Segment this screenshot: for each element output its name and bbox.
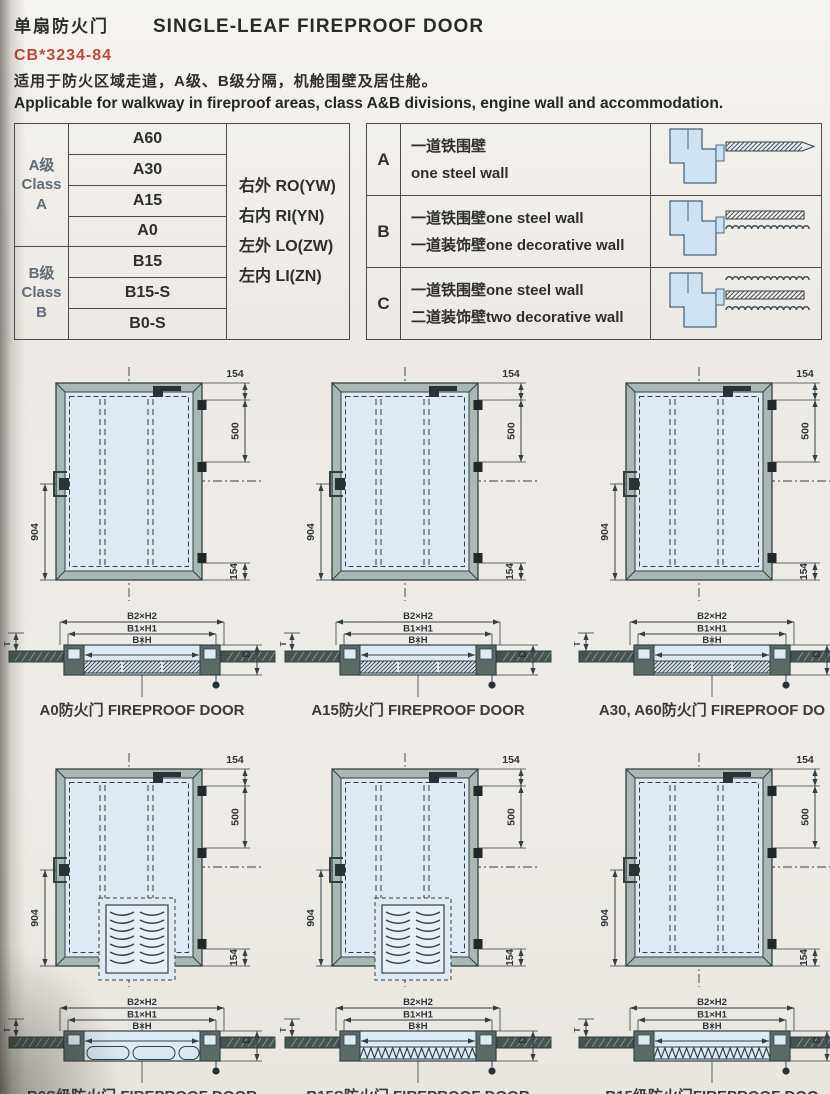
- door-figure-b15: 154500154904 B2×H2B1×H1B×HDT B15级防火门FIRE…: [574, 750, 830, 1094]
- door-figure-a30-a60: 154500154904 B2×H2B1×H1B×HDT A30, A60防火门…: [574, 364, 830, 720]
- svg-text:B2×H2: B2×H2: [127, 997, 157, 1008]
- svg-text:T: T: [4, 641, 12, 647]
- svg-text:D: D: [812, 650, 823, 657]
- svg-text:500: 500: [230, 422, 242, 440]
- orientation-cell: 右外 RO(YW) 右内 RI(YN) 左外 LO(ZW) 左内 LI(ZN): [227, 124, 350, 340]
- svg-text:T: T: [574, 1027, 582, 1033]
- section-svg: B2×H2B1×H1B×HDT: [574, 992, 830, 1084]
- svg-text:904: 904: [29, 523, 41, 541]
- svg-text:B×H: B×H: [408, 1021, 427, 1032]
- description-chinese: 适用于防火区域走道，A级、B级分隔，机舱围壁及居住舱。: [14, 70, 830, 91]
- svg-text:T: T: [4, 1027, 12, 1033]
- door-front-drawing: 154500154904: [574, 364, 830, 604]
- svg-text:D: D: [242, 1036, 253, 1043]
- door-cross-section: B2×H2B1×H1B×HDT: [574, 606, 830, 698]
- wall-diagram-svg: [654, 196, 818, 262]
- svg-text:T: T: [280, 641, 288, 647]
- door-svg: 154500154904: [16, 364, 268, 604]
- svg-text:B2×H2: B2×H2: [403, 997, 433, 1008]
- door-front-drawing: 154500154904: [4, 364, 280, 604]
- svg-text:904: 904: [599, 523, 611, 541]
- class-a-label: A级 Class A: [15, 124, 69, 247]
- door-figure-b15s: 154500154904 B2×H2B1×H1B×HDT B15S防火门 FIR…: [280, 750, 556, 1094]
- door-svg: 154500154904: [16, 750, 268, 990]
- wall-diagram-svg: [654, 124, 818, 190]
- svg-text:904: 904: [305, 523, 317, 541]
- wall-row-key: C: [367, 268, 401, 340]
- door-cross-section: B2×H2B1×H1B×HDT: [4, 992, 280, 1084]
- svg-text:B×H: B×H: [408, 635, 427, 646]
- svg-text:B1×H1: B1×H1: [697, 1010, 728, 1021]
- figure-caption: A15防火门 FIREPROOF DOOR: [280, 699, 556, 720]
- svg-text:B2×H2: B2×H2: [403, 611, 433, 622]
- wall-diagram-c: [651, 268, 822, 340]
- svg-text:B×H: B×H: [132, 635, 151, 646]
- page-title: 单扇防火门SINGLE-LEAF FIREPROOF DOOR: [14, 12, 830, 38]
- class-b-label: B级 Class B: [15, 247, 69, 340]
- wall-row-text: 一道铁围壁one steel wall 二道装饰壁two decorative …: [401, 268, 651, 340]
- svg-text:B2×H2: B2×H2: [697, 611, 727, 622]
- door-figure-a15: 154500154904 B2×H2B1×H1B×HDT A15防火门 FIRE…: [280, 364, 556, 720]
- type-cell: A0: [69, 216, 227, 247]
- page-header: 单扇防火门SINGLE-LEAF FIREPROOF DOOR CB*3234-…: [0, 0, 830, 113]
- figure-caption: B15级防火门FIREPROOF DOO: [574, 1085, 830, 1094]
- wall-row-key: A: [367, 124, 401, 196]
- door-cross-section: B2×H2B1×H1B×HDT: [280, 992, 556, 1084]
- svg-text:154: 154: [796, 754, 814, 766]
- type-cell: B15-S: [69, 278, 227, 309]
- svg-text:154: 154: [226, 368, 244, 380]
- door-svg: 154500154904: [586, 364, 830, 604]
- svg-text:904: 904: [29, 909, 41, 927]
- wall-row-key: B: [367, 196, 401, 268]
- section-svg: B2×H2B1×H1B×HDT: [280, 606, 556, 698]
- svg-text:154: 154: [226, 754, 244, 766]
- svg-text:B1×H1: B1×H1: [127, 624, 158, 635]
- svg-text:500: 500: [230, 808, 242, 826]
- svg-text:500: 500: [800, 422, 812, 440]
- catalog-page: 单扇防火门SINGLE-LEAF FIREPROOF DOOR CB*3234-…: [0, 0, 830, 1094]
- svg-text:904: 904: [305, 909, 317, 927]
- svg-text:T: T: [280, 1027, 288, 1033]
- svg-text:904: 904: [599, 909, 611, 927]
- svg-text:B×H: B×H: [702, 635, 721, 646]
- section-svg: B2×H2B1×H1B×HDT: [4, 992, 280, 1084]
- wall-diagram-a: [651, 124, 822, 196]
- wall-row-text: 一道铁围壁one steel wall 一道装饰壁one decorative …: [401, 196, 651, 268]
- type-cell: B0-S: [69, 309, 227, 340]
- door-front-drawing: 154500154904: [4, 750, 280, 990]
- wall-section-diagram: [654, 177, 818, 194]
- svg-text:B1×H1: B1×H1: [403, 624, 434, 635]
- door-cross-section: B2×H2B1×H1B×HDT: [574, 992, 830, 1084]
- type-cell: A15: [69, 185, 227, 216]
- figures-row-2: 154500154904 B2×H2B1×H1B×HDT B0S级防火门 FIR…: [0, 750, 830, 1094]
- figures-row-1: 154500154904 B2×H2B1×H1B×HDT A0防火门 FIREP…: [0, 364, 830, 720]
- svg-text:T: T: [574, 641, 582, 647]
- section-svg: B2×H2B1×H1B×HDT: [280, 992, 556, 1084]
- wall-row-text: 一道铁围壁 one steel wall: [401, 124, 651, 196]
- title-english: SINGLE-LEAF FIREPROOF DOOR: [153, 16, 484, 37]
- svg-text:154: 154: [796, 368, 814, 380]
- door-figure-a0: 154500154904 B2×H2B1×H1B×HDT A0防火门 FIREP…: [4, 364, 280, 720]
- svg-text:154: 154: [799, 563, 810, 580]
- door-svg: 154500154904: [586, 750, 830, 990]
- svg-text:154: 154: [799, 949, 810, 966]
- wall-configuration-table: A 一道铁围壁 one steel wall B 一道铁围壁one steel …: [366, 123, 822, 340]
- door-front-drawing: 154500154904: [280, 364, 556, 604]
- svg-text:B×H: B×H: [702, 1021, 721, 1032]
- svg-text:B1×H1: B1×H1: [403, 1010, 434, 1021]
- class-table: A级 Class A A60 右外 RO(YW) 右内 RI(YN) 左外 LO…: [14, 123, 350, 340]
- svg-text:154: 154: [502, 368, 520, 380]
- door-front-drawing: 154500154904: [280, 750, 556, 990]
- svg-text:B2×H2: B2×H2: [697, 997, 727, 1008]
- door-svg: 154500154904: [292, 750, 544, 990]
- figure-caption: A30, A60防火门 FIREPROOF DO: [574, 699, 830, 720]
- section-svg: B2×H2B1×H1B×HDT: [4, 606, 280, 698]
- svg-text:154: 154: [229, 563, 240, 580]
- svg-text:B×H: B×H: [132, 1021, 151, 1032]
- wall-diagram-svg: [654, 268, 818, 334]
- description-english: Applicable for walkway in fireproof area…: [14, 95, 830, 113]
- figure-caption: B0S级防火门 FIREPROOF DOOR: [4, 1085, 280, 1094]
- wall-section-diagram: [654, 321, 818, 338]
- door-svg: 154500154904: [292, 364, 544, 604]
- svg-text:154: 154: [505, 563, 516, 580]
- title-chinese: 单扇防火门: [14, 17, 109, 36]
- svg-text:154: 154: [502, 754, 520, 766]
- spec-tables: A级 Class A A60 右外 RO(YW) 右内 RI(YN) 左外 LO…: [14, 123, 822, 340]
- svg-text:154: 154: [229, 949, 240, 966]
- door-front-drawing: 154500154904: [574, 750, 830, 990]
- svg-text:500: 500: [506, 808, 518, 826]
- svg-text:500: 500: [800, 808, 812, 826]
- svg-text:D: D: [242, 650, 253, 657]
- svg-text:B1×H1: B1×H1: [127, 1010, 158, 1021]
- wall-diagram-b: [651, 196, 822, 268]
- door-cross-section: B2×H2B1×H1B×HDT: [280, 606, 556, 698]
- wall-section-diagram: [654, 249, 818, 266]
- svg-text:B2×H2: B2×H2: [127, 611, 157, 622]
- type-cell: A30: [69, 154, 227, 185]
- svg-text:D: D: [812, 1036, 823, 1043]
- standard-number: CB*3234-84: [14, 47, 830, 65]
- section-svg: B2×H2B1×H1B×HDT: [574, 606, 830, 698]
- svg-text:154: 154: [505, 949, 516, 966]
- door-figure-b0s: 154500154904 B2×H2B1×H1B×HDT B0S级防火门 FIR…: [4, 750, 280, 1094]
- figure-caption: B15S防火门 FIREPROOF DOOR: [280, 1085, 556, 1094]
- type-cell: A60: [69, 124, 227, 155]
- svg-text:500: 500: [506, 422, 518, 440]
- svg-text:D: D: [518, 1036, 529, 1043]
- svg-text:D: D: [518, 650, 529, 657]
- type-cell: B15: [69, 247, 227, 278]
- svg-text:B1×H1: B1×H1: [697, 624, 728, 635]
- figure-caption: A0防火门 FIREPROOF DOOR: [4, 699, 280, 720]
- door-cross-section: B2×H2B1×H1B×HDT: [4, 606, 280, 698]
